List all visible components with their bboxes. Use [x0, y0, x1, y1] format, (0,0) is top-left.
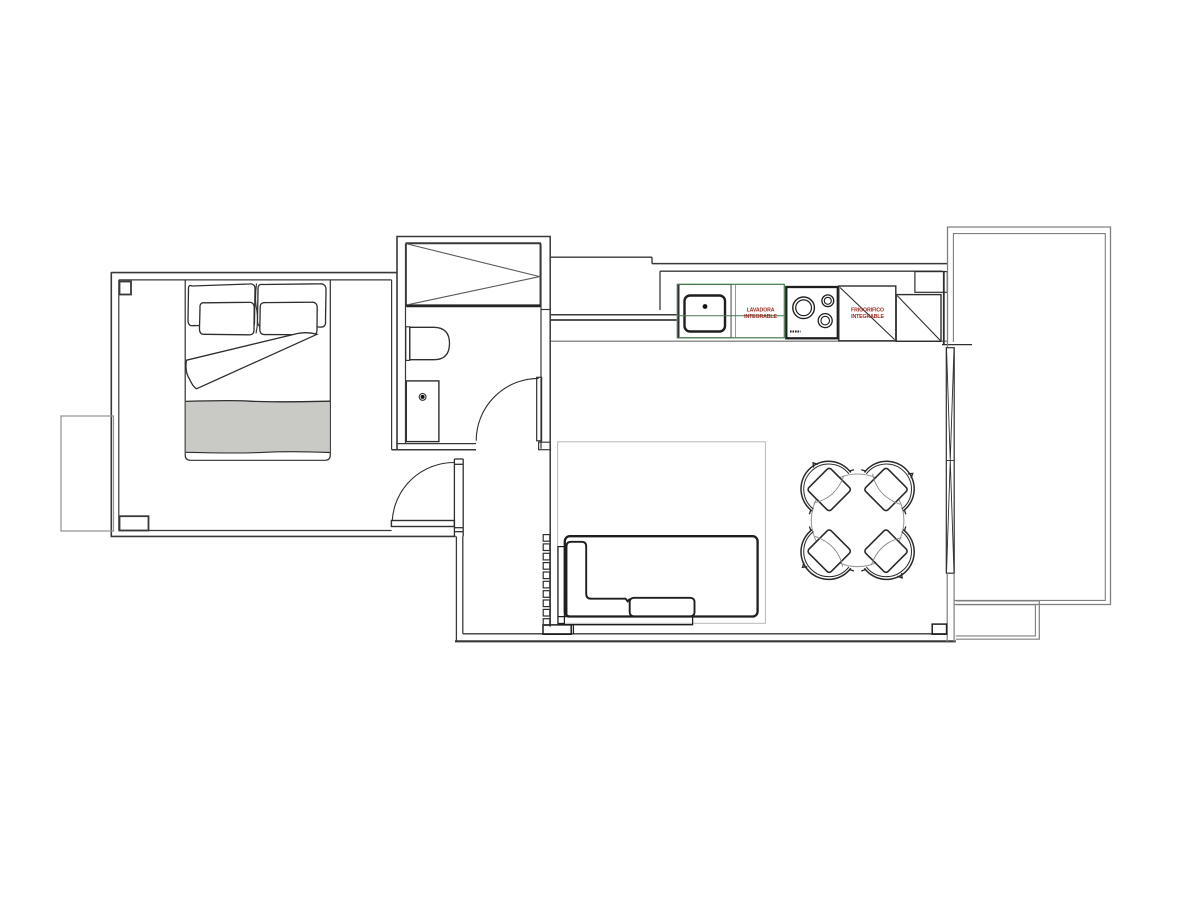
svg-text:LAVADORA: LAVADORA [747, 307, 775, 313]
svg-text:FRIGORIFICO: FRIGORIFICO [851, 307, 884, 313]
svg-text:INTEGRABLE: INTEGRABLE [744, 314, 777, 320]
svg-text:INTEGRABLE: INTEGRABLE [851, 314, 884, 320]
